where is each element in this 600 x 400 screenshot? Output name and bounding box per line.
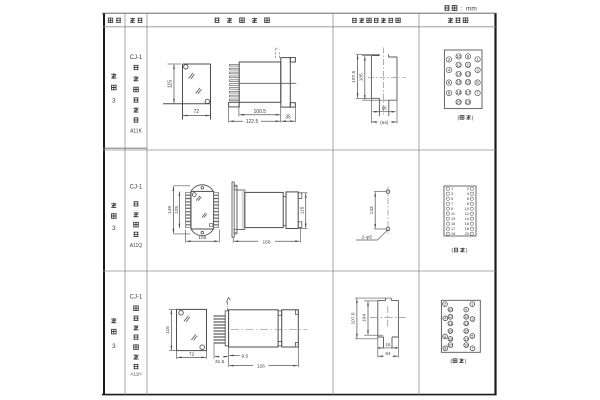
svg-text:CJ-1: CJ-1 [130,185,143,191]
svg-text:31.5: 31.5 [215,359,225,365]
svg-text:CJ-1: CJ-1 [130,55,143,61]
svg-text:19: 19 [464,344,468,348]
svg-text:19: 19 [451,232,455,236]
svg-text:14: 14 [465,217,469,221]
svg-text:10: 10 [456,54,461,59]
svg-text::: : [461,6,463,13]
svg-text:15: 15 [451,222,455,226]
svg-text:3: 3 [471,317,473,321]
svg-text:13: 13 [451,217,455,221]
svg-text:1: 1 [451,187,453,191]
svg-text:(: ( [457,116,459,122]
svg-text:107.5: 107.5 [351,70,357,82]
svg-text:8: 8 [467,202,469,206]
svg-text:mm: mm [466,6,477,13]
svg-text:18: 18 [456,90,461,95]
svg-text:115: 115 [300,206,306,214]
svg-text:4: 4 [444,317,446,321]
svg-text:7: 7 [451,202,453,206]
svg-text:3: 3 [112,343,116,350]
svg-text:104: 104 [362,314,368,322]
svg-text:16: 16 [385,342,390,347]
svg-text:(: ( [451,248,453,254]
svg-text:126: 126 [257,364,265,370]
svg-text:122.5: 122.5 [246,119,259,125]
svg-text:11: 11 [466,62,471,67]
svg-text:115: 115 [165,326,171,334]
svg-text:3: 3 [112,225,116,232]
svg-text:16: 16 [448,329,452,333]
svg-text:16: 16 [381,106,387,111]
svg-text:A11H: A11H [130,372,141,377]
svg-text:105: 105 [358,73,364,81]
svg-text:12: 12 [465,212,469,216]
svg-text:CJ-1: CJ-1 [130,294,143,300]
svg-text:9: 9 [465,308,467,312]
svg-text:9.5: 9.5 [242,353,249,359]
svg-text:8: 8 [444,347,446,351]
svg-text:11: 11 [451,212,455,216]
svg-text:64: 64 [385,351,391,356]
svg-text:72: 72 [194,109,200,115]
svg-text:6: 6 [444,335,446,339]
svg-text:5: 5 [471,334,473,338]
svg-text:(64): (64) [380,120,389,125]
svg-text:105: 105 [198,235,206,241]
svg-text:14: 14 [448,322,452,326]
svg-text:156: 156 [262,239,270,245]
svg-text:19: 19 [466,100,471,105]
svg-text:35: 35 [285,115,291,121]
svg-text:7: 7 [471,347,473,351]
svg-text:13: 13 [464,322,468,326]
svg-text:1: 1 [471,303,473,307]
svg-text:11: 11 [464,315,468,319]
svg-text:2: 2 [467,187,469,191]
svg-text:16: 16 [456,80,461,85]
svg-text:16: 16 [465,222,469,226]
svg-text:3: 3 [112,97,116,104]
svg-text:15: 15 [466,80,471,85]
svg-text:13: 13 [466,72,471,77]
svg-text:): ) [465,359,467,365]
svg-text:18: 18 [448,337,452,341]
svg-text:115: 115 [168,80,174,88]
svg-text:2: 2 [444,303,446,307]
svg-text:15: 15 [464,329,468,333]
svg-text:20: 20 [456,100,461,105]
svg-text:5: 5 [451,197,453,201]
svg-text:18: 18 [465,227,469,231]
svg-text:107.5: 107.5 [351,312,357,324]
svg-text:9: 9 [451,207,453,211]
svg-text:17: 17 [466,90,471,95]
svg-text:125: 125 [174,206,180,214]
svg-text:φ5: φ5 [366,234,372,240]
svg-text:): ) [472,116,474,122]
svg-text:133: 133 [369,206,375,214]
svg-text:(: ( [450,359,452,365]
svg-text:10: 10 [465,207,469,211]
svg-text:6: 6 [467,197,469,201]
svg-text:17: 17 [451,227,455,231]
svg-text:A11K: A11K [130,129,143,135]
svg-text:149: 149 [167,206,173,214]
svg-text:A11Q: A11Q [130,243,143,249]
svg-text:10: 10 [448,308,452,312]
svg-text:12: 12 [456,62,461,67]
svg-text:20: 20 [448,344,452,348]
svg-text:12: 12 [448,315,452,319]
svg-text:72: 72 [189,351,195,357]
svg-text:4: 4 [467,192,469,196]
svg-text:20: 20 [465,232,469,236]
svg-text:): ) [466,248,468,254]
svg-text:3: 3 [451,192,453,196]
svg-text:100.5: 100.5 [254,109,267,115]
svg-text:14: 14 [456,72,461,77]
svg-text:17: 17 [464,337,468,341]
